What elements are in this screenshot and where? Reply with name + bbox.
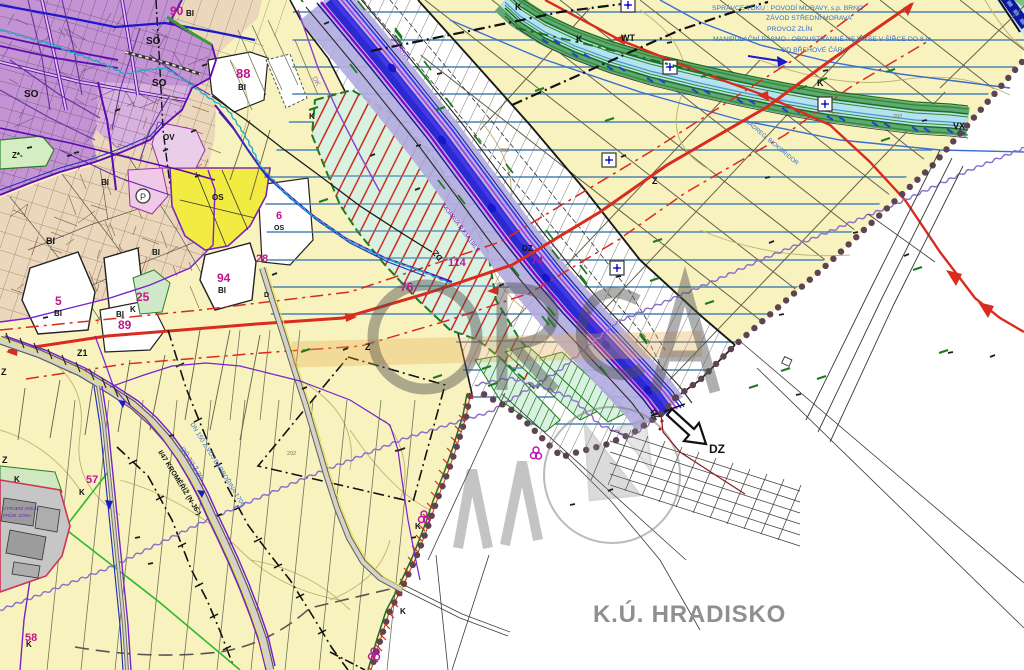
svg-text:DZ: DZ: [522, 244, 533, 253]
svg-text:OV: OV: [163, 133, 175, 142]
svg-text:Z: Z: [2, 455, 8, 465]
svg-text:BI: BI: [218, 286, 226, 295]
svg-text:SO: SO: [152, 78, 167, 89]
svg-text:K: K: [309, 112, 315, 121]
svg-text:DZ: DZ: [709, 442, 725, 456]
svg-text:SPRÁVCE TOKU : POVODÍ MORAVY: SPRÁVCE TOKU : POVODÍ MORAVY, s.p. BRNO: [712, 3, 863, 12]
svg-text:VX: VX: [953, 121, 965, 131]
svg-text:88: 88: [236, 66, 250, 81]
svg-text:OD BŘEHOVÉ ČÁRY: OD BŘEHOVÉ ČÁRY: [781, 45, 847, 54]
svg-text:25: 25: [136, 290, 150, 304]
svg-text:Bl: Bl: [101, 178, 109, 187]
svg-text:90: 90: [170, 4, 184, 18]
svg-text:BI: BI: [238, 83, 246, 92]
svg-text:BI: BI: [54, 309, 62, 318]
svg-text:SO: SO: [24, 89, 39, 100]
svg-text:VÝROBNÍ AREÁL: VÝROBNÍ AREÁL: [3, 505, 40, 511]
svg-text:BI: BI: [46, 236, 55, 246]
svg-text:Z1: Z1: [77, 348, 88, 358]
svg-text:292: 292: [893, 114, 902, 120]
svg-text:292: 292: [500, 148, 509, 154]
svg-text:ZÁVOD STŘEDNÍ MORAVA: ZÁVOD STŘEDNÍ MORAVA: [766, 13, 852, 22]
svg-text:Z: Z: [652, 176, 658, 186]
svg-text:OS: OS: [212, 193, 224, 202]
svg-text:292: 292: [830, 112, 839, 118]
svg-text:K: K: [26, 640, 32, 649]
svg-text:BI: BI: [152, 248, 160, 257]
svg-text:PRŮM. ZÓNA: PRŮM. ZÓNA: [3, 512, 31, 518]
svg-text:K: K: [415, 522, 421, 531]
svg-text:WT: WT: [621, 33, 635, 43]
svg-text:K: K: [14, 475, 20, 484]
svg-text:BI: BI: [116, 310, 124, 319]
svg-text:94: 94: [217, 271, 231, 285]
svg-text:K: K: [576, 34, 583, 44]
svg-text:57: 57: [86, 474, 98, 486]
svg-text:Z*-: Z*-: [12, 151, 23, 160]
svg-text:K: K: [515, 2, 522, 12]
svg-text:K: K: [130, 305, 136, 314]
svg-text:P: P: [140, 192, 146, 202]
svg-text:74: 74: [531, 255, 544, 267]
svg-text:5: 5: [55, 294, 62, 308]
svg-text:K.Ú. HRADISKO: K.Ú. HRADISKO: [593, 600, 786, 628]
svg-text:PROVOZ ZLÍN: PROVOZ ZLÍN: [767, 24, 812, 33]
svg-text:114: 114: [448, 257, 467, 269]
svg-text:K: K: [400, 607, 406, 616]
svg-text:SO: SO: [146, 36, 161, 47]
svg-text:K: K: [817, 78, 824, 88]
svg-text:K: K: [79, 488, 85, 497]
svg-text:6: 6: [276, 210, 282, 222]
svg-text:28: 28: [256, 253, 268, 265]
svg-text:76: 76: [400, 280, 414, 294]
svg-text:BI: BI: [186, 9, 194, 18]
svg-text:D: D: [264, 292, 269, 299]
svg-text:292: 292: [287, 451, 296, 457]
svg-text:89: 89: [118, 318, 132, 332]
svg-text:Z: Z: [365, 342, 371, 352]
svg-text:MANIPULAČNÍ PÁSMO : OBOUSTRAN: MANIPULAČNÍ PÁSMO : OBOUSTRANNÉ NEJVÝŠE …: [713, 34, 932, 43]
svg-text:Z: Z: [1, 367, 7, 377]
svg-text:OS: OS: [274, 225, 284, 232]
